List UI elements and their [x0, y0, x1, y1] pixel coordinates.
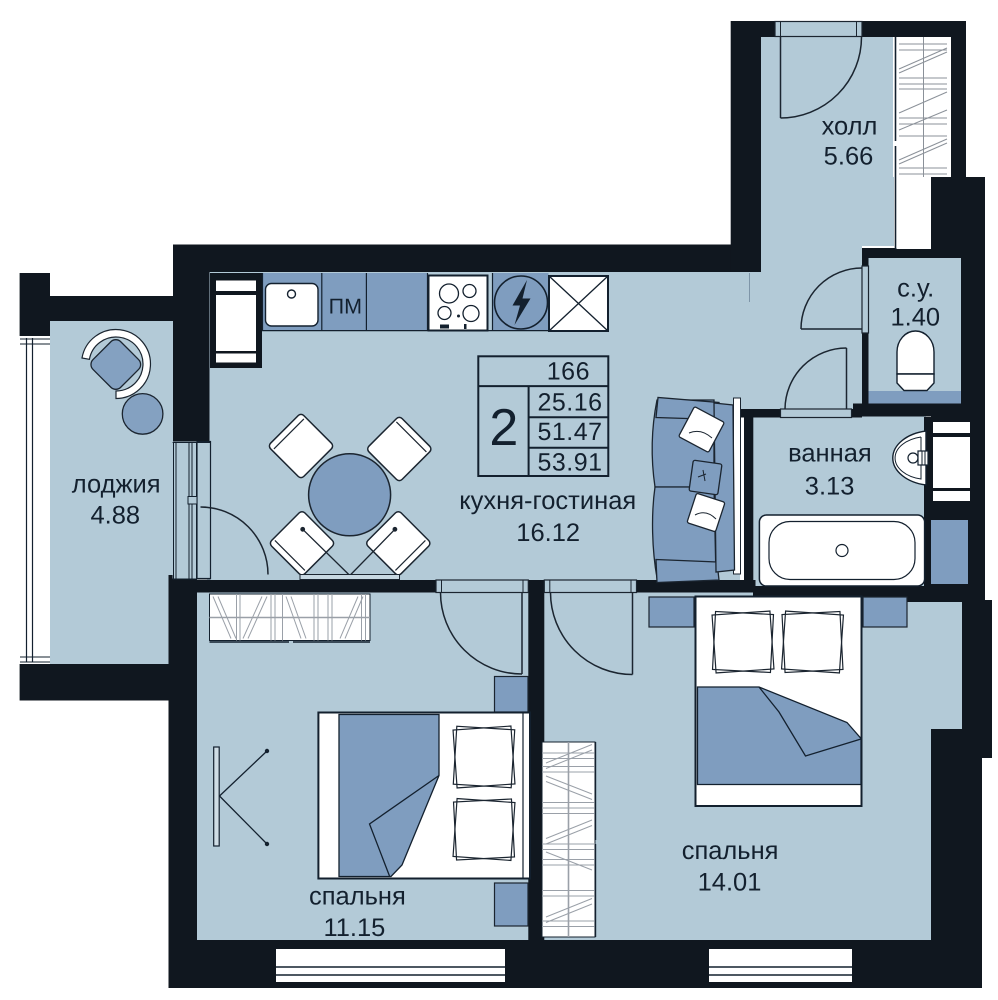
svg-text:с.у.: с.у.	[897, 275, 934, 303]
svg-text:25.16: 25.16	[537, 389, 602, 417]
svg-text:спальня: спальня	[682, 837, 779, 865]
svg-text:2: 2	[489, 399, 518, 457]
svg-text:1.40: 1.40	[890, 304, 940, 332]
svg-text:3.13: 3.13	[805, 473, 855, 501]
svg-text:ПМ: ПМ	[329, 295, 362, 319]
svg-text:спальня: спальня	[309, 883, 406, 911]
svg-text:53.91: 53.91	[537, 449, 602, 477]
svg-text:51.47: 51.47	[537, 418, 602, 446]
svg-text:холл: холл	[822, 113, 878, 141]
svg-text:16.12: 16.12	[516, 519, 580, 547]
svg-text:166: 166	[547, 358, 590, 386]
svg-text:ванная: ванная	[788, 440, 872, 468]
svg-text:14.01: 14.01	[698, 869, 762, 897]
svg-text:11.15: 11.15	[323, 914, 385, 942]
svg-text:5.66: 5.66	[824, 143, 874, 171]
svg-text:4.88: 4.88	[90, 502, 140, 530]
svg-text:лоджия: лоджия	[72, 471, 161, 499]
svg-text:кухня-гостиная: кухня-гостиная	[459, 487, 636, 515]
